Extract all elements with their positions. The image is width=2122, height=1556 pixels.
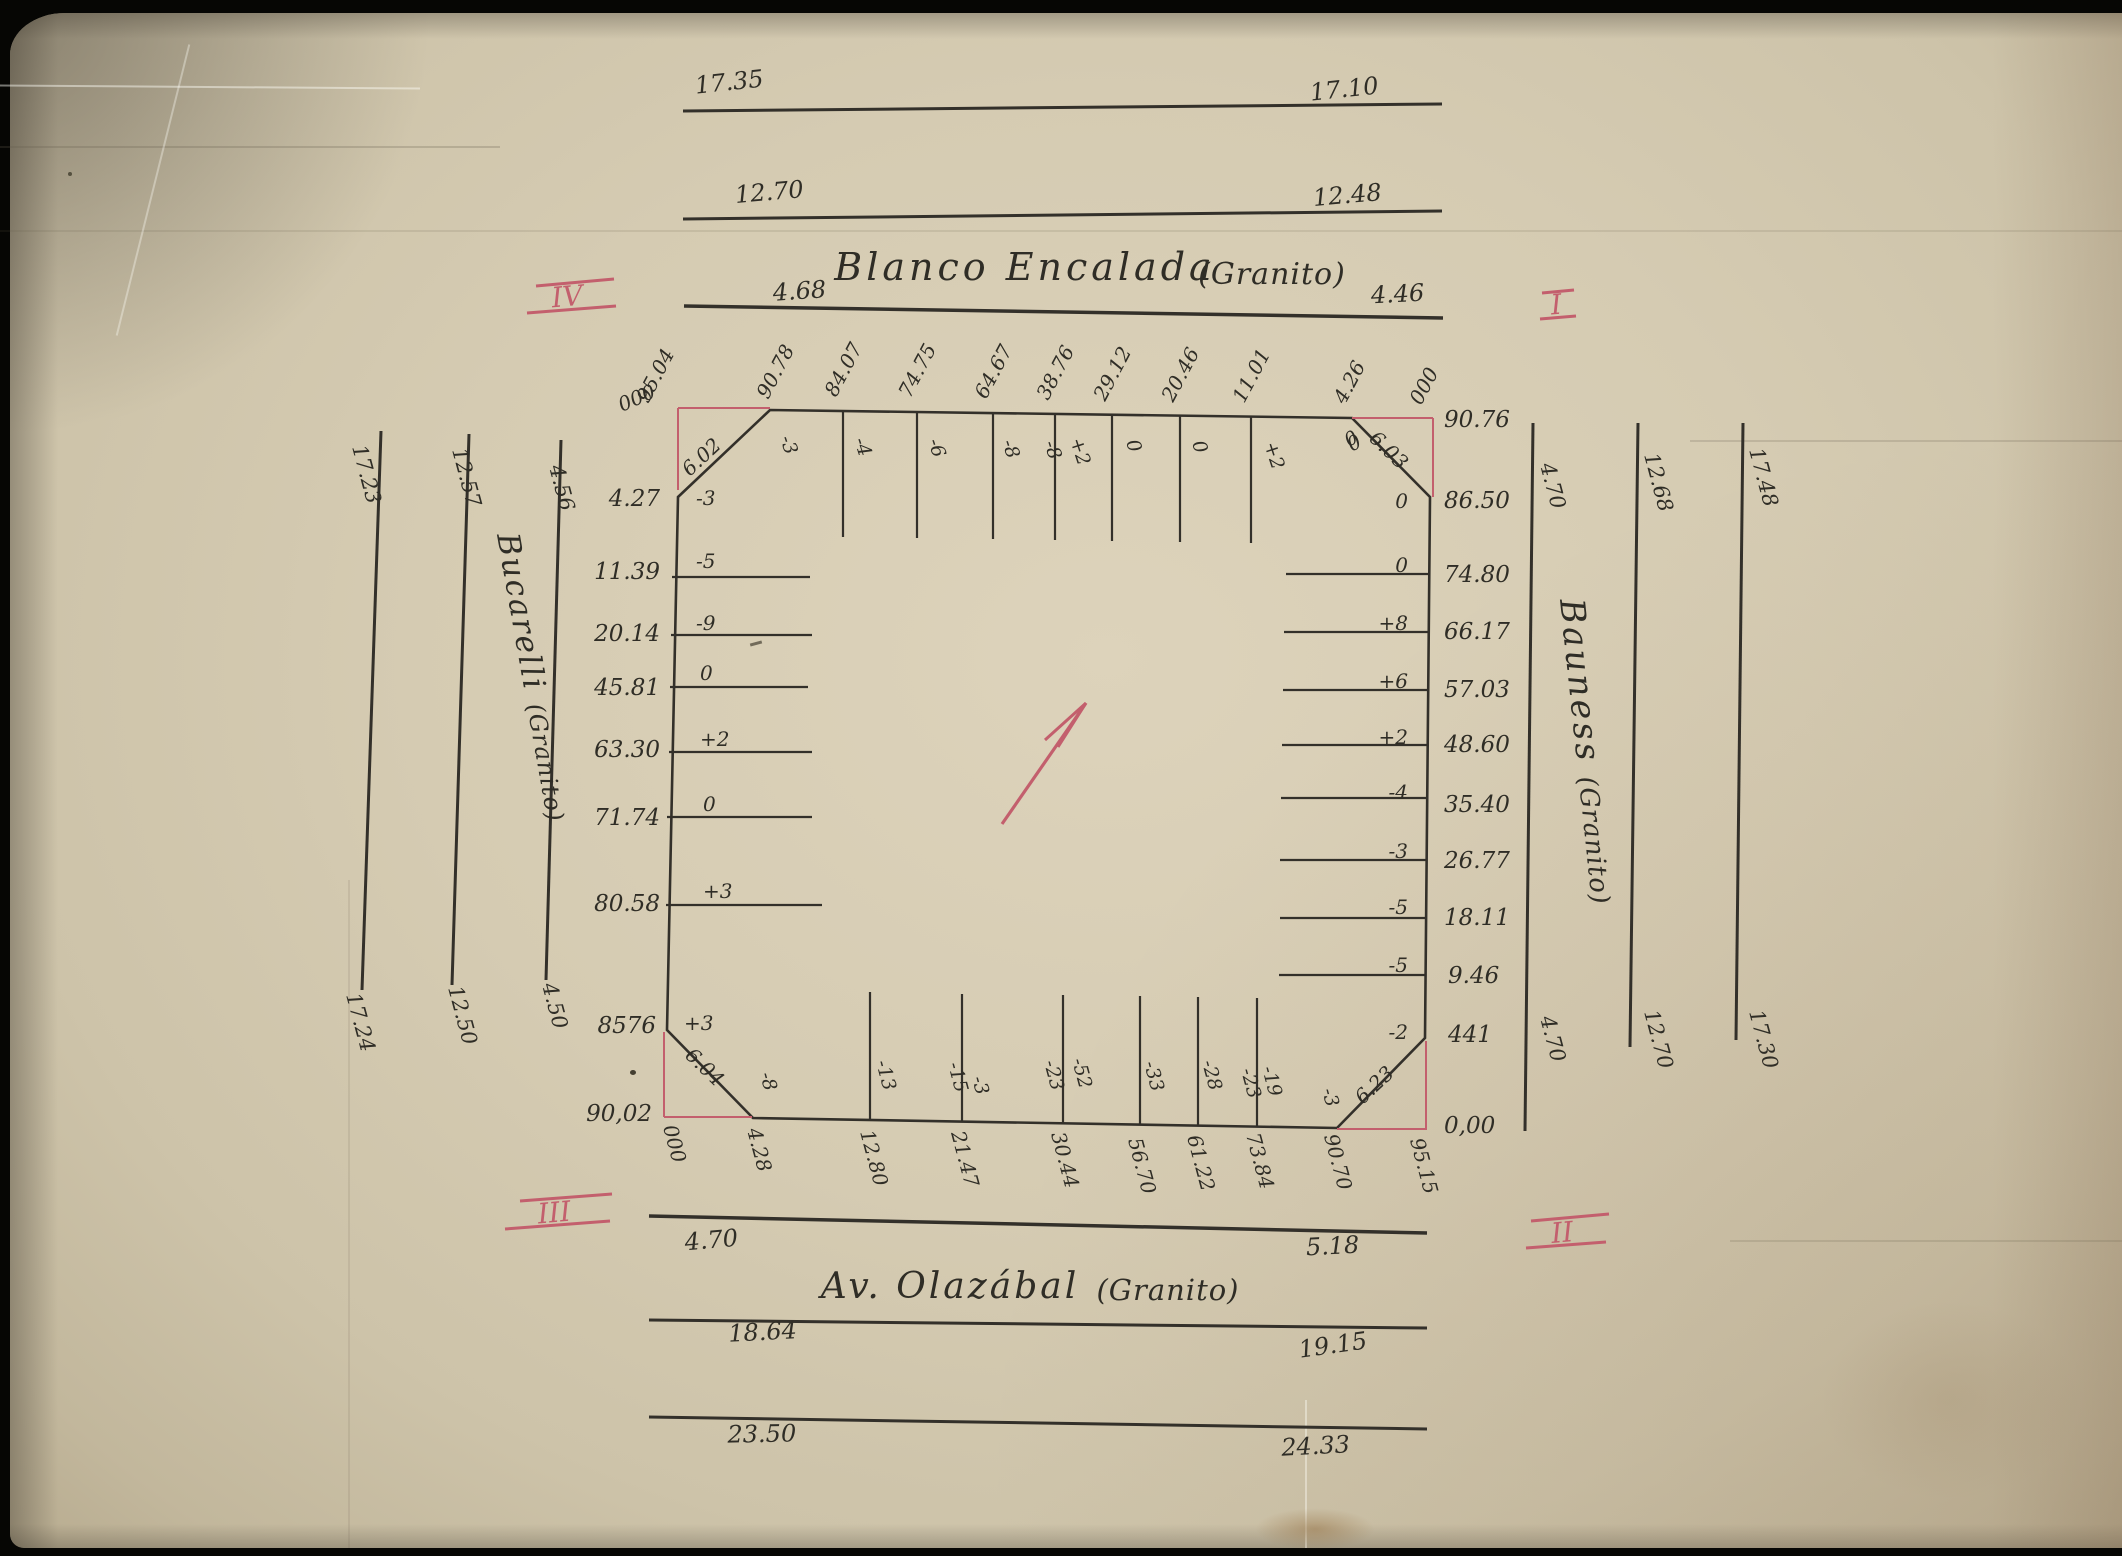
street-width-label: 12.68 [1639, 450, 1678, 514]
distance-label: 61.22 [1182, 1132, 1220, 1194]
chamfer-label: 6.03 [1365, 426, 1414, 474]
offset-label: +3 [703, 879, 732, 903]
offset-label: +3 [684, 1011, 713, 1035]
street-width-label: 12.50 [443, 983, 482, 1047]
street-width-label: 17.30 [1744, 1007, 1783, 1071]
distance-label: 95.15 [1405, 1135, 1443, 1197]
offset-label: -4 [1389, 780, 1408, 804]
street-name-rotated: Bucarelli (Granito) [489, 529, 575, 824]
offset-label: -9 [696, 611, 716, 635]
north-arrow [1002, 703, 1086, 824]
offset-label: -6 [923, 436, 950, 460]
offset-label: +6 [1379, 669, 1409, 693]
distance-label: 90.76 [1444, 407, 1510, 433]
street-width-label: 18.64 [728, 1316, 798, 1348]
marker-overline [1542, 290, 1574, 293]
offset-label: +2 [1379, 725, 1408, 749]
street-width-label: 17.24 [341, 990, 380, 1054]
distance-label: 20.14 [593, 621, 660, 647]
street-material: (Granito) [1198, 257, 1346, 292]
street-edge-line [1736, 423, 1743, 1040]
offset-label: -3 [967, 1074, 993, 1098]
offset-label: -3 [775, 433, 802, 457]
street-width-label: 4.70 [1535, 1012, 1571, 1064]
distance-label: 63.30 [594, 737, 660, 763]
distance-label: 20.46 [1156, 343, 1205, 406]
distance-label: 4.26 [1328, 357, 1371, 409]
offset-label: +2 [700, 727, 729, 751]
parcel-left-edge-annotations: 000 4.27 11.39 20.14 45.81 63.30 71.74 8… [586, 379, 822, 1127]
street-width-label: 17.10 [1309, 72, 1380, 107]
offset-label: 0 [703, 792, 716, 816]
chamfer-label: 6.23 [1350, 1061, 1399, 1109]
distance-label: 26.77 [1443, 848, 1510, 874]
offset-label: 0 [1121, 437, 1146, 455]
offset-label: -3 [1389, 839, 1408, 863]
distance-label: 90,02 [586, 1101, 652, 1127]
distance-label: 64.67 [969, 340, 1017, 402]
parcel-right-edge-annotations: 90.76 86.50 74.80 66.17 57.03 48.60 35.4… [1279, 407, 1510, 1139]
offset-label: +2 [1065, 435, 1095, 468]
street-width-label: 4.68 [771, 275, 827, 307]
street-edge-line [362, 431, 381, 990]
street-left-bucarelli: 17.23 12.57 4.56 17.24 12.50 4.50 Bucare… [341, 431, 579, 1054]
parcel-top-edge-annotations: 95.04 90.78 84.07 74.75 64.67 38.76 29.1… [631, 338, 1443, 543]
distance-label: 56.70 [1123, 1135, 1161, 1197]
distance-label: 80.58 [594, 891, 660, 917]
distance-label: 71.74 [594, 805, 660, 831]
street-name: Bauness [1551, 596, 1608, 765]
street-width-label: 12.48 [1312, 178, 1383, 212]
street-width-label: 17.48 [1744, 445, 1783, 509]
distance-label: 90.70 [1319, 1131, 1357, 1193]
scanned-survey-plan-page: { "colors": { "ink": "#33302a", "pink": … [0, 0, 2122, 1556]
distance-label: 29.12 [1088, 343, 1137, 406]
street-width-label: 12.70 [1639, 1007, 1678, 1071]
offset-label: -8 [755, 1070, 781, 1094]
distance-label: 30.44 [1046, 1129, 1084, 1191]
offset-label: -2 [1389, 1020, 1408, 1044]
offset-label: -28 [1197, 1058, 1226, 1093]
street-width-label: 4.56 [544, 461, 580, 513]
offset-label: -3 [1317, 1086, 1343, 1110]
street-edge-line [683, 104, 1442, 111]
survey-ticks [870, 992, 1257, 1127]
offset-label: 0 [1395, 553, 1408, 577]
offset-label: -5 [696, 549, 715, 573]
street-edge-line [1525, 423, 1533, 1131]
street-edge-line [683, 211, 1442, 219]
street-width-label: 4.70 [1535, 459, 1571, 511]
offset-label: -15 [943, 1060, 972, 1095]
offset-label: 0 [700, 661, 713, 685]
distance-label: 57.03 [1444, 677, 1510, 703]
street-name: Av. Olazábal [818, 1266, 1079, 1307]
street-width-label: 17.35 [694, 65, 765, 100]
distance-label: 000 [1404, 363, 1443, 408]
distance-label: 441 [1447, 1022, 1492, 1048]
parcel-bottom-edge-annotations: 000 4.28 12.80 21.47 30.44 56.70 61.22 7… [658, 992, 1443, 1197]
distance-label: 48.60 [1443, 732, 1510, 758]
street-width-label: 23.50 [726, 1419, 796, 1448]
distance-label: 9.46 [1448, 963, 1499, 989]
street-material: (Granito) [1096, 1273, 1239, 1307]
street-name-rotated: Bauness (Granito) [1551, 596, 1623, 907]
street-width-label: 12.57 [447, 445, 486, 510]
distance-label: 0,00 [1444, 1113, 1495, 1139]
distance-label: 74.75 [893, 340, 941, 402]
parcel-boundary [667, 410, 1430, 1128]
parcel-corner-marks [664, 408, 1433, 1130]
street-width-label: 4.46 [1369, 279, 1425, 310]
offset-label: -3 [696, 486, 715, 510]
street-name: Bucarelli [489, 529, 552, 693]
street-width-label: 19.15 [1297, 1326, 1369, 1363]
distance-label: 12.80 [855, 1127, 893, 1189]
street-name: Blanco Encalada [833, 245, 1215, 289]
offset-label: -4 [849, 435, 876, 459]
distance-label: 35.40 [1444, 792, 1510, 818]
street-right-bauness: 4.70 12.68 17.48 4.70 12.70 17.30 Baunes… [1525, 423, 1783, 1131]
distance-label: 90.78 [751, 341, 799, 403]
street-material: (Granito) [521, 701, 569, 824]
offset-label: -33 [1139, 1059, 1168, 1094]
offset-label: -5 [1389, 895, 1408, 919]
offset-label: +2 [1259, 439, 1289, 472]
offset-label: +8 [1379, 611, 1408, 635]
street-top-blanco-encalada: 17.35 17.10 12.70 12.48 4.68 4.46 Blanco… [683, 65, 1443, 318]
distance-label: 18.11 [1444, 905, 1510, 931]
distance-label: 66.17 [1444, 619, 1510, 645]
distance-label: 38.76 [1031, 341, 1079, 403]
offset-label: 0 [1343, 429, 1366, 456]
distance-label: 4.28 [742, 1124, 777, 1174]
street-bottom-av-olazabal: 4.70 5.18 18.64 19.15 23.50 24.33 Av. Ol… [649, 1216, 1427, 1462]
survey-plan-drawing: 17.35 17.10 12.70 12.48 4.68 4.46 Blanco… [0, 0, 2122, 1556]
distance-label: 000 [658, 1122, 691, 1165]
survey-ticks [843, 411, 1251, 543]
offset-label: 0 [1395, 489, 1408, 513]
distance-label: 21.47 [946, 1127, 984, 1190]
street-edge-line [649, 1216, 1427, 1233]
street-edge-line [452, 434, 469, 985]
offset-label: -52 [1067, 1056, 1096, 1091]
street-material: (Granito) [1572, 775, 1615, 907]
distance-label: 11.39 [594, 559, 660, 585]
offset-label: -13 [871, 1058, 900, 1093]
distance-label: 84.07 [819, 338, 867, 400]
distance-label: 4.27 [608, 486, 661, 512]
street-width-label: 4.70 [682, 1224, 739, 1257]
distance-label: 73.84 [1241, 1130, 1279, 1192]
offset-label: -5 [1389, 953, 1408, 977]
street-edge-line [684, 306, 1443, 318]
parcel-outline: 6.02 6.03 6.04 6.23 [664, 408, 1433, 1130]
north-arrow-head [1045, 703, 1086, 747]
marker-underline [1540, 316, 1576, 319]
street-width-label: 12.70 [734, 175, 805, 209]
offset-label: 0 [1187, 438, 1212, 456]
survey-ticks [666, 577, 822, 905]
distance-label: 11.01 [1227, 345, 1275, 407]
offset-label: -8 [1039, 438, 1066, 462]
distance-label: 86.50 [1444, 488, 1510, 514]
street-width-label: 5.18 [1305, 1231, 1360, 1262]
offset-label: -8 [997, 437, 1024, 461]
street-width-label: 24.33 [1280, 1430, 1351, 1462]
distance-label: 8576 [597, 1013, 656, 1039]
distance-label: 45.81 [593, 675, 660, 701]
distance-label: 74.80 [1444, 562, 1510, 588]
street-edge-line [1630, 423, 1638, 1047]
street-width-label: 4.50 [537, 979, 573, 1031]
